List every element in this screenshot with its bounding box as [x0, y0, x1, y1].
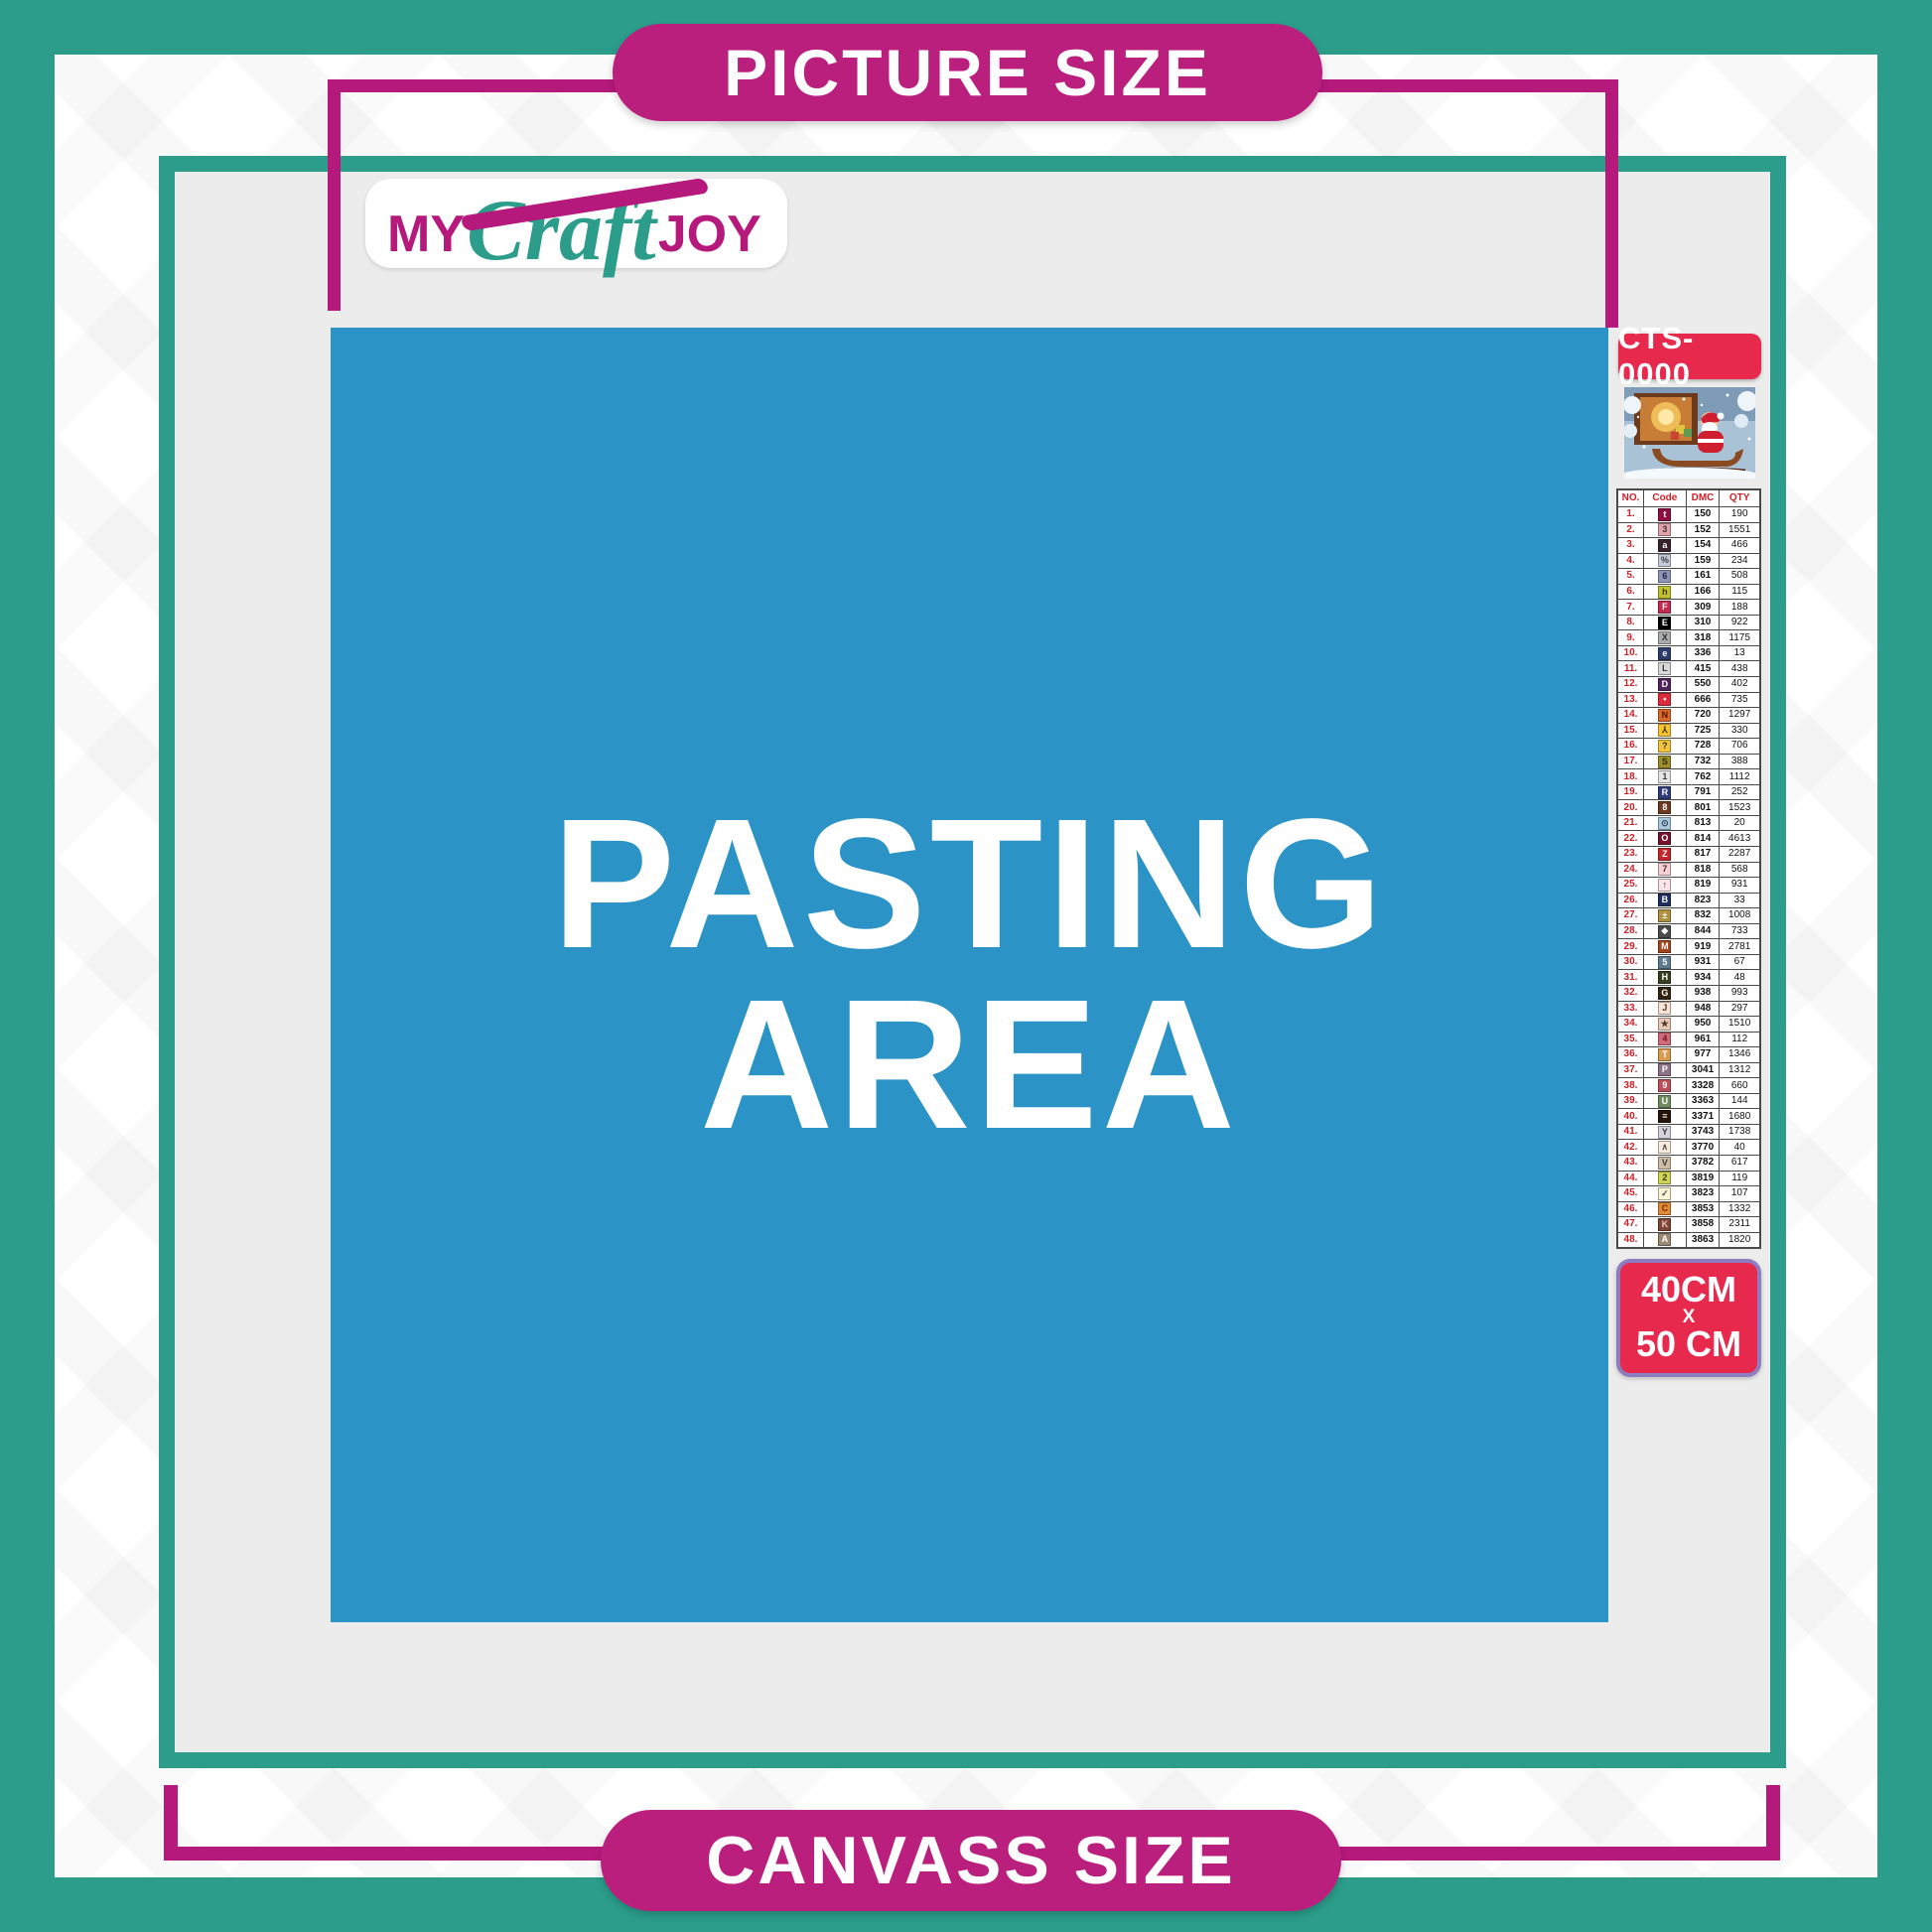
- symbol-chip: G: [1658, 987, 1671, 1000]
- symbol-chip: M: [1658, 940, 1671, 953]
- dmc-code: 550: [1686, 677, 1720, 693]
- quantity: 922: [1720, 615, 1760, 630]
- row-number: 36.: [1617, 1047, 1644, 1063]
- symbol-chip: ⊙: [1658, 817, 1671, 830]
- symbol-cell: G: [1644, 985, 1687, 1001]
- symbol-chip: N: [1658, 709, 1671, 722]
- quantity: 297: [1720, 1001, 1760, 1017]
- symbol-cell: 5: [1644, 954, 1687, 970]
- color-table-row: 16.?728706: [1617, 739, 1760, 755]
- column-header-no: NO.: [1617, 489, 1644, 507]
- dmc-code: 791: [1686, 784, 1720, 800]
- dmc-code: 948: [1686, 1001, 1720, 1017]
- row-number: 23.: [1617, 847, 1644, 863]
- dmc-code: 818: [1686, 862, 1720, 878]
- color-table-row: 43.V3782617: [1617, 1155, 1760, 1171]
- color-table-row: 7.F309188: [1617, 600, 1760, 616]
- quantity: 508: [1720, 569, 1760, 585]
- symbol-chip: V: [1658, 1157, 1671, 1170]
- symbol-chip: ★: [1658, 1018, 1671, 1031]
- dmc-code: 3328: [1686, 1078, 1720, 1094]
- quantity: 402: [1720, 677, 1760, 693]
- symbol-cell: 4: [1644, 1032, 1687, 1047]
- symbol-cell: R: [1644, 784, 1687, 800]
- symbol-chip: H: [1658, 971, 1671, 984]
- color-table-row: 41.Y37431738: [1617, 1124, 1760, 1140]
- symbol-cell: S: [1644, 754, 1687, 769]
- quantity: 931: [1720, 878, 1760, 894]
- dmc-code: 720: [1686, 708, 1720, 724]
- quantity: 67: [1720, 954, 1760, 970]
- symbol-chip: a: [1658, 539, 1671, 552]
- symbol-cell: D: [1644, 677, 1687, 693]
- symbol-chip: 5: [1658, 956, 1671, 969]
- color-table-row: 27.±8321008: [1617, 908, 1760, 924]
- symbol-cell: O: [1644, 831, 1687, 847]
- quantity: 1738: [1720, 1124, 1760, 1140]
- symbol-cell: ✓: [1644, 1186, 1687, 1202]
- quantity: 568: [1720, 862, 1760, 878]
- color-table-row: 33.J948297: [1617, 1001, 1760, 1017]
- size-width-label: 40CM: [1620, 1271, 1757, 1309]
- symbol-cell: 6: [1644, 569, 1687, 585]
- symbol-chip: P: [1658, 1063, 1671, 1076]
- symbol-chip: •: [1658, 693, 1671, 706]
- quantity: 1297: [1720, 708, 1760, 724]
- symbol-cell: ↑: [1644, 878, 1687, 894]
- quantity: 1175: [1720, 630, 1760, 646]
- color-table-row: 31.H93448: [1617, 970, 1760, 986]
- symbol-cell: N: [1644, 708, 1687, 724]
- dmc-code: 318: [1686, 630, 1720, 646]
- color-table-row: 6.h166115: [1617, 584, 1760, 600]
- symbol-chip: ↑: [1658, 879, 1671, 892]
- dmc-code: 762: [1686, 769, 1720, 785]
- dmc-code: 977: [1686, 1047, 1720, 1063]
- quantity: 1008: [1720, 908, 1760, 924]
- symbol-cell: H: [1644, 970, 1687, 986]
- quantity: 438: [1720, 661, 1760, 677]
- symbol-cell: L: [1644, 661, 1687, 677]
- dmc-code: 415: [1686, 661, 1720, 677]
- symbol-cell: ≡: [1644, 1109, 1687, 1125]
- symbol-chip: Y: [1658, 1126, 1671, 1139]
- kit-info-column: CTS-0000: [1616, 334, 1763, 1377]
- color-table-row: 12.D550402: [1617, 677, 1760, 693]
- symbol-cell: h: [1644, 584, 1687, 600]
- quantity: 40: [1720, 1140, 1760, 1156]
- symbol-chip: T: [1658, 1048, 1671, 1061]
- color-table-row: 39.U3363144: [1617, 1093, 1760, 1109]
- row-number: 37.: [1617, 1062, 1644, 1078]
- row-number: 9.: [1617, 630, 1644, 646]
- symbol-chip: O: [1658, 832, 1671, 845]
- symbol-chip: C: [1658, 1202, 1671, 1215]
- symbol-chip: h: [1658, 586, 1671, 599]
- quantity: 1820: [1720, 1232, 1760, 1248]
- color-table-row: 26.B82333: [1617, 893, 1760, 908]
- symbol-cell: ±: [1644, 908, 1687, 924]
- dmc-code: 3041: [1686, 1062, 1720, 1078]
- symbol-chip: 4: [1658, 1033, 1671, 1045]
- symbol-cell: U: [1644, 1093, 1687, 1109]
- quantity: 1510: [1720, 1017, 1760, 1033]
- quantity: 735: [1720, 692, 1760, 708]
- sku-badge: CTS-0000: [1618, 334, 1761, 379]
- column-header-qty: QTY: [1720, 489, 1760, 507]
- symbol-cell: P: [1644, 1062, 1687, 1078]
- symbol-cell: M: [1644, 939, 1687, 955]
- symbol-chip: R: [1658, 786, 1671, 799]
- color-table-row: 9.X3181175: [1617, 630, 1760, 646]
- color-table-row: 14.N7201297: [1617, 708, 1760, 724]
- quantity: 119: [1720, 1171, 1760, 1186]
- color-table-row: 32.G938993: [1617, 985, 1760, 1001]
- column-header-dmc: DMC: [1686, 489, 1720, 507]
- design-preview-thumbnail: [1624, 387, 1755, 479]
- dmc-code: 725: [1686, 723, 1720, 739]
- row-number: 39.: [1617, 1093, 1644, 1109]
- row-number: 26.: [1617, 893, 1644, 908]
- dmc-code: 159: [1686, 553, 1720, 569]
- color-table-row: 46.C38531332: [1617, 1201, 1760, 1217]
- row-number: 17.: [1617, 754, 1644, 769]
- dmc-code: 961: [1686, 1032, 1720, 1047]
- symbol-cell: %: [1644, 553, 1687, 569]
- color-table-row: 25.↑819931: [1617, 878, 1760, 894]
- picture-size-bracket-right: [1605, 79, 1618, 328]
- pasting-area-label-line2: AREA: [700, 975, 1239, 1156]
- dmc-color-table: NO. Code DMC QTY 1.t1501902.315215513.a1…: [1616, 488, 1761, 1249]
- row-number: 33.: [1617, 1001, 1644, 1017]
- symbol-cell: V: [1644, 1155, 1687, 1171]
- color-table-row: 4.%159234: [1617, 553, 1760, 569]
- canvas-size-badge: 40CM X 50 CM: [1616, 1259, 1761, 1377]
- row-number: 18.: [1617, 769, 1644, 785]
- symbol-cell: B: [1644, 893, 1687, 908]
- row-number: 24.: [1617, 862, 1644, 878]
- row-number: 21.: [1617, 815, 1644, 831]
- row-number: 16.: [1617, 739, 1644, 755]
- row-number: 12.: [1617, 677, 1644, 693]
- brand-logo: MY Craft JOY: [365, 179, 787, 268]
- color-table-row: 22.O8144613: [1617, 831, 1760, 847]
- quantity: 48: [1720, 970, 1760, 986]
- color-table-row: 23.Z8172287: [1617, 847, 1760, 863]
- color-table-row: 37.P30411312: [1617, 1062, 1760, 1078]
- symbol-chip: A: [1658, 1233, 1671, 1246]
- symbol-cell: X: [1644, 630, 1687, 646]
- dmc-code: 732: [1686, 754, 1720, 769]
- row-number: 41.: [1617, 1124, 1644, 1140]
- color-table-row: 18.17621112: [1617, 769, 1760, 785]
- row-number: 31.: [1617, 970, 1644, 986]
- color-table-row: 35.4961112: [1617, 1032, 1760, 1047]
- color-table-row: 47.K38582311: [1617, 1217, 1760, 1233]
- dmc-code: 950: [1686, 1017, 1720, 1033]
- symbol-cell: Z: [1644, 847, 1687, 863]
- color-table-row: 24.7818568: [1617, 862, 1760, 878]
- symbol-chip: X: [1658, 631, 1671, 644]
- row-number: 20.: [1617, 800, 1644, 816]
- dmc-code: 152: [1686, 522, 1720, 538]
- symbol-cell: •: [1644, 692, 1687, 708]
- symbol-chip: ⅄: [1658, 724, 1671, 737]
- row-number: 44.: [1617, 1171, 1644, 1186]
- color-table-row: 42.∧377040: [1617, 1140, 1760, 1156]
- symbol-chip: 1: [1658, 770, 1671, 783]
- symbol-chip: ?: [1658, 740, 1671, 753]
- symbol-cell: 2: [1644, 1171, 1687, 1186]
- row-number: 48.: [1617, 1232, 1644, 1248]
- size-height-label: 50 CM: [1620, 1325, 1757, 1363]
- symbol-chip: ±: [1658, 909, 1671, 922]
- symbol-cell: ❖: [1644, 923, 1687, 939]
- row-number: 25.: [1617, 878, 1644, 894]
- pasting-area: PASTING AREA: [331, 328, 1608, 1622]
- symbol-cell: 9: [1644, 1078, 1687, 1094]
- color-table-row: 44.23819119: [1617, 1171, 1760, 1186]
- quantity: 188: [1720, 600, 1760, 616]
- dmc-code: 938: [1686, 985, 1720, 1001]
- symbol-cell: a: [1644, 538, 1687, 554]
- color-table-row: 20.88011523: [1617, 800, 1760, 816]
- canvass-size-bracket-right: [1766, 1785, 1780, 1861]
- symbol-cell: ∧: [1644, 1140, 1687, 1156]
- row-number: 14.: [1617, 708, 1644, 724]
- dmc-code: 3853: [1686, 1201, 1720, 1217]
- symbol-chip: t: [1658, 508, 1671, 521]
- color-table-row: 30.593167: [1617, 954, 1760, 970]
- symbol-chip: ∧: [1658, 1141, 1671, 1154]
- dmc-code: 817: [1686, 847, 1720, 863]
- symbol-chip: L: [1658, 662, 1671, 675]
- dmc-code: 934: [1686, 970, 1720, 986]
- quantity: 4613: [1720, 831, 1760, 847]
- symbol-cell: A: [1644, 1232, 1687, 1248]
- row-number: 11.: [1617, 661, 1644, 677]
- quantity: 1312: [1720, 1062, 1760, 1078]
- symbol-cell: K: [1644, 1217, 1687, 1233]
- quantity: 115: [1720, 584, 1760, 600]
- canvass-size-banner: CANVASS SIZE: [601, 1810, 1341, 1911]
- dmc-code: 161: [1686, 569, 1720, 585]
- dmc-code: 832: [1686, 908, 1720, 924]
- color-table-row: 8.E310922: [1617, 615, 1760, 630]
- color-table-row: 40.≡33711680: [1617, 1109, 1760, 1125]
- row-number: 47.: [1617, 1217, 1644, 1233]
- quantity: 144: [1720, 1093, 1760, 1109]
- quantity: 2311: [1720, 1217, 1760, 1233]
- quantity: 1332: [1720, 1201, 1760, 1217]
- row-number: 28.: [1617, 923, 1644, 939]
- dmc-code: 336: [1686, 645, 1720, 661]
- symbol-cell: 8: [1644, 800, 1687, 816]
- row-number: 29.: [1617, 939, 1644, 955]
- color-table-row: 1.t150190: [1617, 507, 1760, 523]
- logo-word-joy: JOY: [658, 211, 761, 258]
- symbol-chip: K: [1658, 1218, 1671, 1231]
- color-table-row: 29.M9192781: [1617, 939, 1760, 955]
- row-number: 38.: [1617, 1078, 1644, 1094]
- row-number: 2.: [1617, 522, 1644, 538]
- dmc-code: 3858: [1686, 1217, 1720, 1233]
- row-number: 6.: [1617, 584, 1644, 600]
- color-table-row: 45.✓3823107: [1617, 1186, 1760, 1202]
- dmc-code: 844: [1686, 923, 1720, 939]
- row-number: 42.: [1617, 1140, 1644, 1156]
- symbol-cell: 7: [1644, 862, 1687, 878]
- quantity: 107: [1720, 1186, 1760, 1202]
- color-table-row: 48.A38631820: [1617, 1232, 1760, 1248]
- quantity: 706: [1720, 739, 1760, 755]
- quantity: 1551: [1720, 522, 1760, 538]
- quantity: 112: [1720, 1032, 1760, 1047]
- color-table-row: 38.93328660: [1617, 1078, 1760, 1094]
- dmc-code: 3863: [1686, 1232, 1720, 1248]
- row-number: 27.: [1617, 908, 1644, 924]
- color-table-row: 36.T9771346: [1617, 1047, 1760, 1063]
- symbol-chip: e: [1658, 647, 1671, 660]
- dmc-code: 823: [1686, 893, 1720, 908]
- row-number: 19.: [1617, 784, 1644, 800]
- row-number: 40.: [1617, 1109, 1644, 1125]
- row-number: 10.: [1617, 645, 1644, 661]
- quantity: 20: [1720, 815, 1760, 831]
- row-number: 46.: [1617, 1201, 1644, 1217]
- color-table-row: 3.a154466: [1617, 538, 1760, 554]
- canvass-size-bracket-left: [164, 1785, 178, 1861]
- row-number: 32.: [1617, 985, 1644, 1001]
- dmc-code: 814: [1686, 831, 1720, 847]
- dmc-code: 166: [1686, 584, 1720, 600]
- dmc-code: 3782: [1686, 1155, 1720, 1171]
- symbol-cell: C: [1644, 1201, 1687, 1217]
- symbol-chip: 9: [1658, 1079, 1671, 1092]
- symbol-chip: E: [1658, 617, 1671, 629]
- symbol-cell: t: [1644, 507, 1687, 523]
- dmc-code: 728: [1686, 739, 1720, 755]
- quantity: 33: [1720, 893, 1760, 908]
- symbol-cell: ?: [1644, 739, 1687, 755]
- quantity: 234: [1720, 553, 1760, 569]
- symbol-cell: 3: [1644, 522, 1687, 538]
- symbol-cell: E: [1644, 615, 1687, 630]
- color-table-row: 5.6161508: [1617, 569, 1760, 585]
- symbol-chip: J: [1658, 1002, 1671, 1015]
- color-table-row: 2.31521551: [1617, 522, 1760, 538]
- symbol-chip: S: [1658, 756, 1671, 768]
- dmc-code: 801: [1686, 800, 1720, 816]
- column-header-code: Code: [1644, 489, 1687, 507]
- row-number: 3.: [1617, 538, 1644, 554]
- dmc-code: 154: [1686, 538, 1720, 554]
- quantity: 733: [1720, 923, 1760, 939]
- symbol-chip: Z: [1658, 848, 1671, 861]
- quantity: 190: [1720, 507, 1760, 523]
- dmc-code: 813: [1686, 815, 1720, 831]
- row-number: 8.: [1617, 615, 1644, 630]
- row-number: 4.: [1617, 553, 1644, 569]
- symbol-chip: ❖: [1658, 925, 1671, 938]
- color-table-header-row: NO. Code DMC QTY: [1617, 489, 1760, 507]
- color-table-row: 17.S732388: [1617, 754, 1760, 769]
- dmc-code: 3823: [1686, 1186, 1720, 1202]
- dmc-code: 150: [1686, 507, 1720, 523]
- symbol-cell: Y: [1644, 1124, 1687, 1140]
- dmc-code: 310: [1686, 615, 1720, 630]
- symbol-cell: ⅄: [1644, 723, 1687, 739]
- symbol-chip: F: [1658, 601, 1671, 614]
- dmc-code: 3819: [1686, 1171, 1720, 1186]
- color-table-row: 21.⊙81320: [1617, 815, 1760, 831]
- dmc-code: 3363: [1686, 1093, 1720, 1109]
- row-number: 30.: [1617, 954, 1644, 970]
- quantity: 993: [1720, 985, 1760, 1001]
- color-table-row: 15.⅄725330: [1617, 723, 1760, 739]
- row-number: 34.: [1617, 1017, 1644, 1033]
- dmc-code: 3743: [1686, 1124, 1720, 1140]
- symbol-chip: 2: [1658, 1172, 1671, 1184]
- symbol-cell: 1: [1644, 769, 1687, 785]
- symbol-chip: D: [1658, 678, 1671, 691]
- symbol-chip: U: [1658, 1095, 1671, 1108]
- quantity: 660: [1720, 1078, 1760, 1094]
- row-number: 22.: [1617, 831, 1644, 847]
- color-table-row: 34.★9501510: [1617, 1017, 1760, 1033]
- symbol-cell: J: [1644, 1001, 1687, 1017]
- picture-size-banner: PICTURE SIZE: [613, 24, 1322, 121]
- row-number: 15.: [1617, 723, 1644, 739]
- row-number: 5.: [1617, 569, 1644, 585]
- row-number: 7.: [1617, 600, 1644, 616]
- dmc-code: 3371: [1686, 1109, 1720, 1125]
- symbol-cell: F: [1644, 600, 1687, 616]
- symbol-chip: ≡: [1658, 1110, 1671, 1123]
- symbol-cell: T: [1644, 1047, 1687, 1063]
- color-table-row: 28.❖844733: [1617, 923, 1760, 939]
- symbol-cell: ⊙: [1644, 815, 1687, 831]
- quantity: 1523: [1720, 800, 1760, 816]
- row-number: 13.: [1617, 692, 1644, 708]
- dmc-code: 931: [1686, 954, 1720, 970]
- color-table-row: 19.R791252: [1617, 784, 1760, 800]
- dmc-code: 3770: [1686, 1140, 1720, 1156]
- product-poster: PASTING AREA MY Craft JOY CTS-0000: [0, 0, 1932, 1932]
- color-table-body: 1.t1501902.315215513.a1544664.%1592345.6…: [1617, 507, 1760, 1249]
- row-number: 43.: [1617, 1155, 1644, 1171]
- picture-size-bracket-left: [328, 79, 341, 311]
- row-number: 1.: [1617, 507, 1644, 523]
- logo-word-my: MY: [387, 211, 465, 258]
- quantity: 466: [1720, 538, 1760, 554]
- color-table-row: 10.e33613: [1617, 645, 1760, 661]
- dmc-code: 919: [1686, 939, 1720, 955]
- symbol-cell: ★: [1644, 1017, 1687, 1033]
- symbol-chip: 3: [1658, 523, 1671, 536]
- quantity: 1112: [1720, 769, 1760, 785]
- symbol-chip: 6: [1658, 570, 1671, 583]
- quantity: 2781: [1720, 939, 1760, 955]
- quantity: 617: [1720, 1155, 1760, 1171]
- color-table-row: 13.•666735: [1617, 692, 1760, 708]
- dmc-code: 819: [1686, 878, 1720, 894]
- quantity: 252: [1720, 784, 1760, 800]
- quantity: 13: [1720, 645, 1760, 661]
- row-number: 45.: [1617, 1186, 1644, 1202]
- quantity: 1346: [1720, 1047, 1760, 1063]
- row-number: 35.: [1617, 1032, 1644, 1047]
